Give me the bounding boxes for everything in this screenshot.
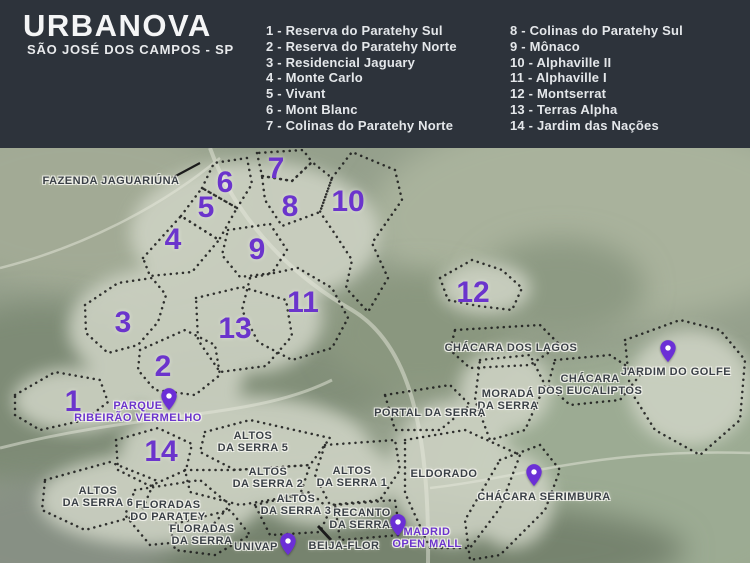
legend-column-2: 8 - Colinas do Paratehy Sul9 - Mônaco10 …	[510, 23, 683, 134]
urbanova-map-infographic: URBANOVA SÃO JOSÉ DOS CAMPOS - SP 1 - Re…	[0, 0, 750, 563]
legend-item: 11 - Alphaville I	[510, 70, 683, 86]
legend-item: 6 - Mont Blanc	[266, 102, 457, 118]
map-terrain	[0, 148, 750, 563]
legend-item: 1 - Reserva do Paratehy Sul	[266, 23, 457, 39]
legend-item: 3 - Residencial Jaguary	[266, 55, 457, 71]
legend-item: 9 - Mônaco	[510, 39, 683, 55]
page-subtitle: SÃO JOSÉ DOS CAMPOS - SP	[27, 42, 234, 57]
legend-item: 2 - Reserva do Paratehy Norte	[266, 39, 457, 55]
legend-column-1: 1 - Reserva do Paratehy Sul2 - Reserva d…	[266, 23, 457, 134]
legend-item: 8 - Colinas do Paratehy Sul	[510, 23, 683, 39]
legend-item: 7 - Colinas do Paratehy Norte	[266, 118, 457, 134]
page-title: URBANOVA	[23, 8, 212, 44]
legend-item: 4 - Monte Carlo	[266, 70, 457, 86]
legend-item: 14 - Jardim das Nações	[510, 118, 683, 134]
header: URBANOVA SÃO JOSÉ DOS CAMPOS - SP 1 - Re…	[0, 0, 750, 148]
legend-item: 13 - Terras Alpha	[510, 102, 683, 118]
legend-item: 12 - Montserrat	[510, 86, 683, 102]
map-area	[0, 148, 750, 563]
legend-item: 5 - Vivant	[266, 86, 457, 102]
legend-item: 10 - Alphaville II	[510, 55, 683, 71]
